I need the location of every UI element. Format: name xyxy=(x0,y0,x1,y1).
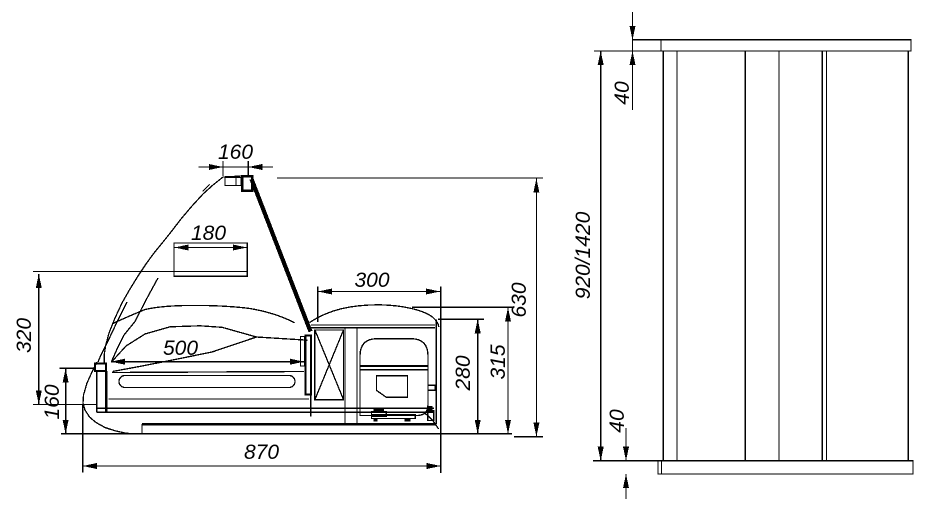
svg-text:320: 320 xyxy=(13,318,36,353)
svg-text:630: 630 xyxy=(508,282,531,317)
svg-text:315: 315 xyxy=(487,344,510,379)
svg-text:280: 280 xyxy=(452,355,475,391)
svg-text:920/1420: 920/1420 xyxy=(572,211,595,299)
svg-text:500: 500 xyxy=(163,337,198,360)
svg-text:160: 160 xyxy=(41,384,64,419)
svg-text:870: 870 xyxy=(244,441,279,464)
svg-text:160: 160 xyxy=(218,141,253,164)
svg-text:40: 40 xyxy=(611,81,634,105)
svg-text:40: 40 xyxy=(606,409,629,433)
svg-text:180: 180 xyxy=(191,222,226,245)
svg-text:300: 300 xyxy=(354,269,389,292)
